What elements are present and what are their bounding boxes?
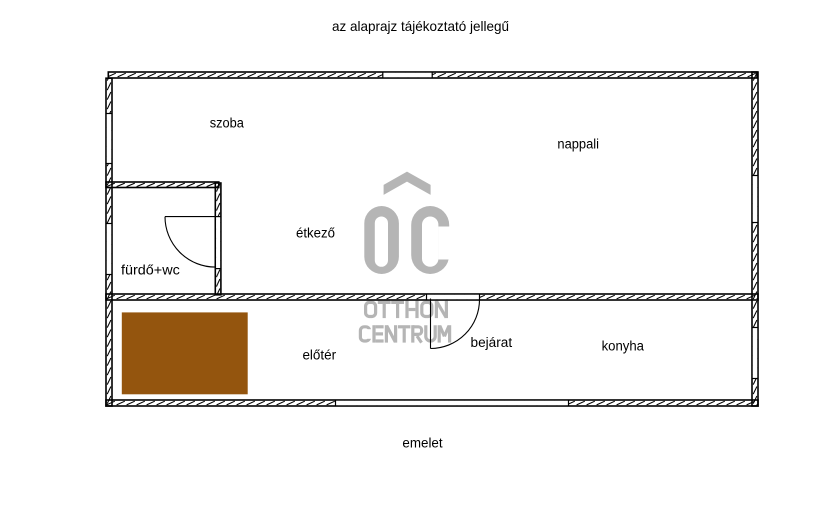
svg-text:szoba: szoba [210,116,245,131]
svg-text:fürdő+wc: fürdő+wc [121,263,180,278]
svg-text:emelet: emelet [402,436,442,451]
svg-text:étkező: étkező [296,226,335,241]
svg-text:előtér: előtér [302,348,336,363]
svg-text:nappali: nappali [557,136,599,151]
svg-text:konyha: konyha [602,338,645,353]
svg-text:az alaprajz tájékoztató jelleg: az alaprajz tájékoztató jellegű [332,19,509,34]
svg-text:bejárat: bejárat [471,335,513,350]
